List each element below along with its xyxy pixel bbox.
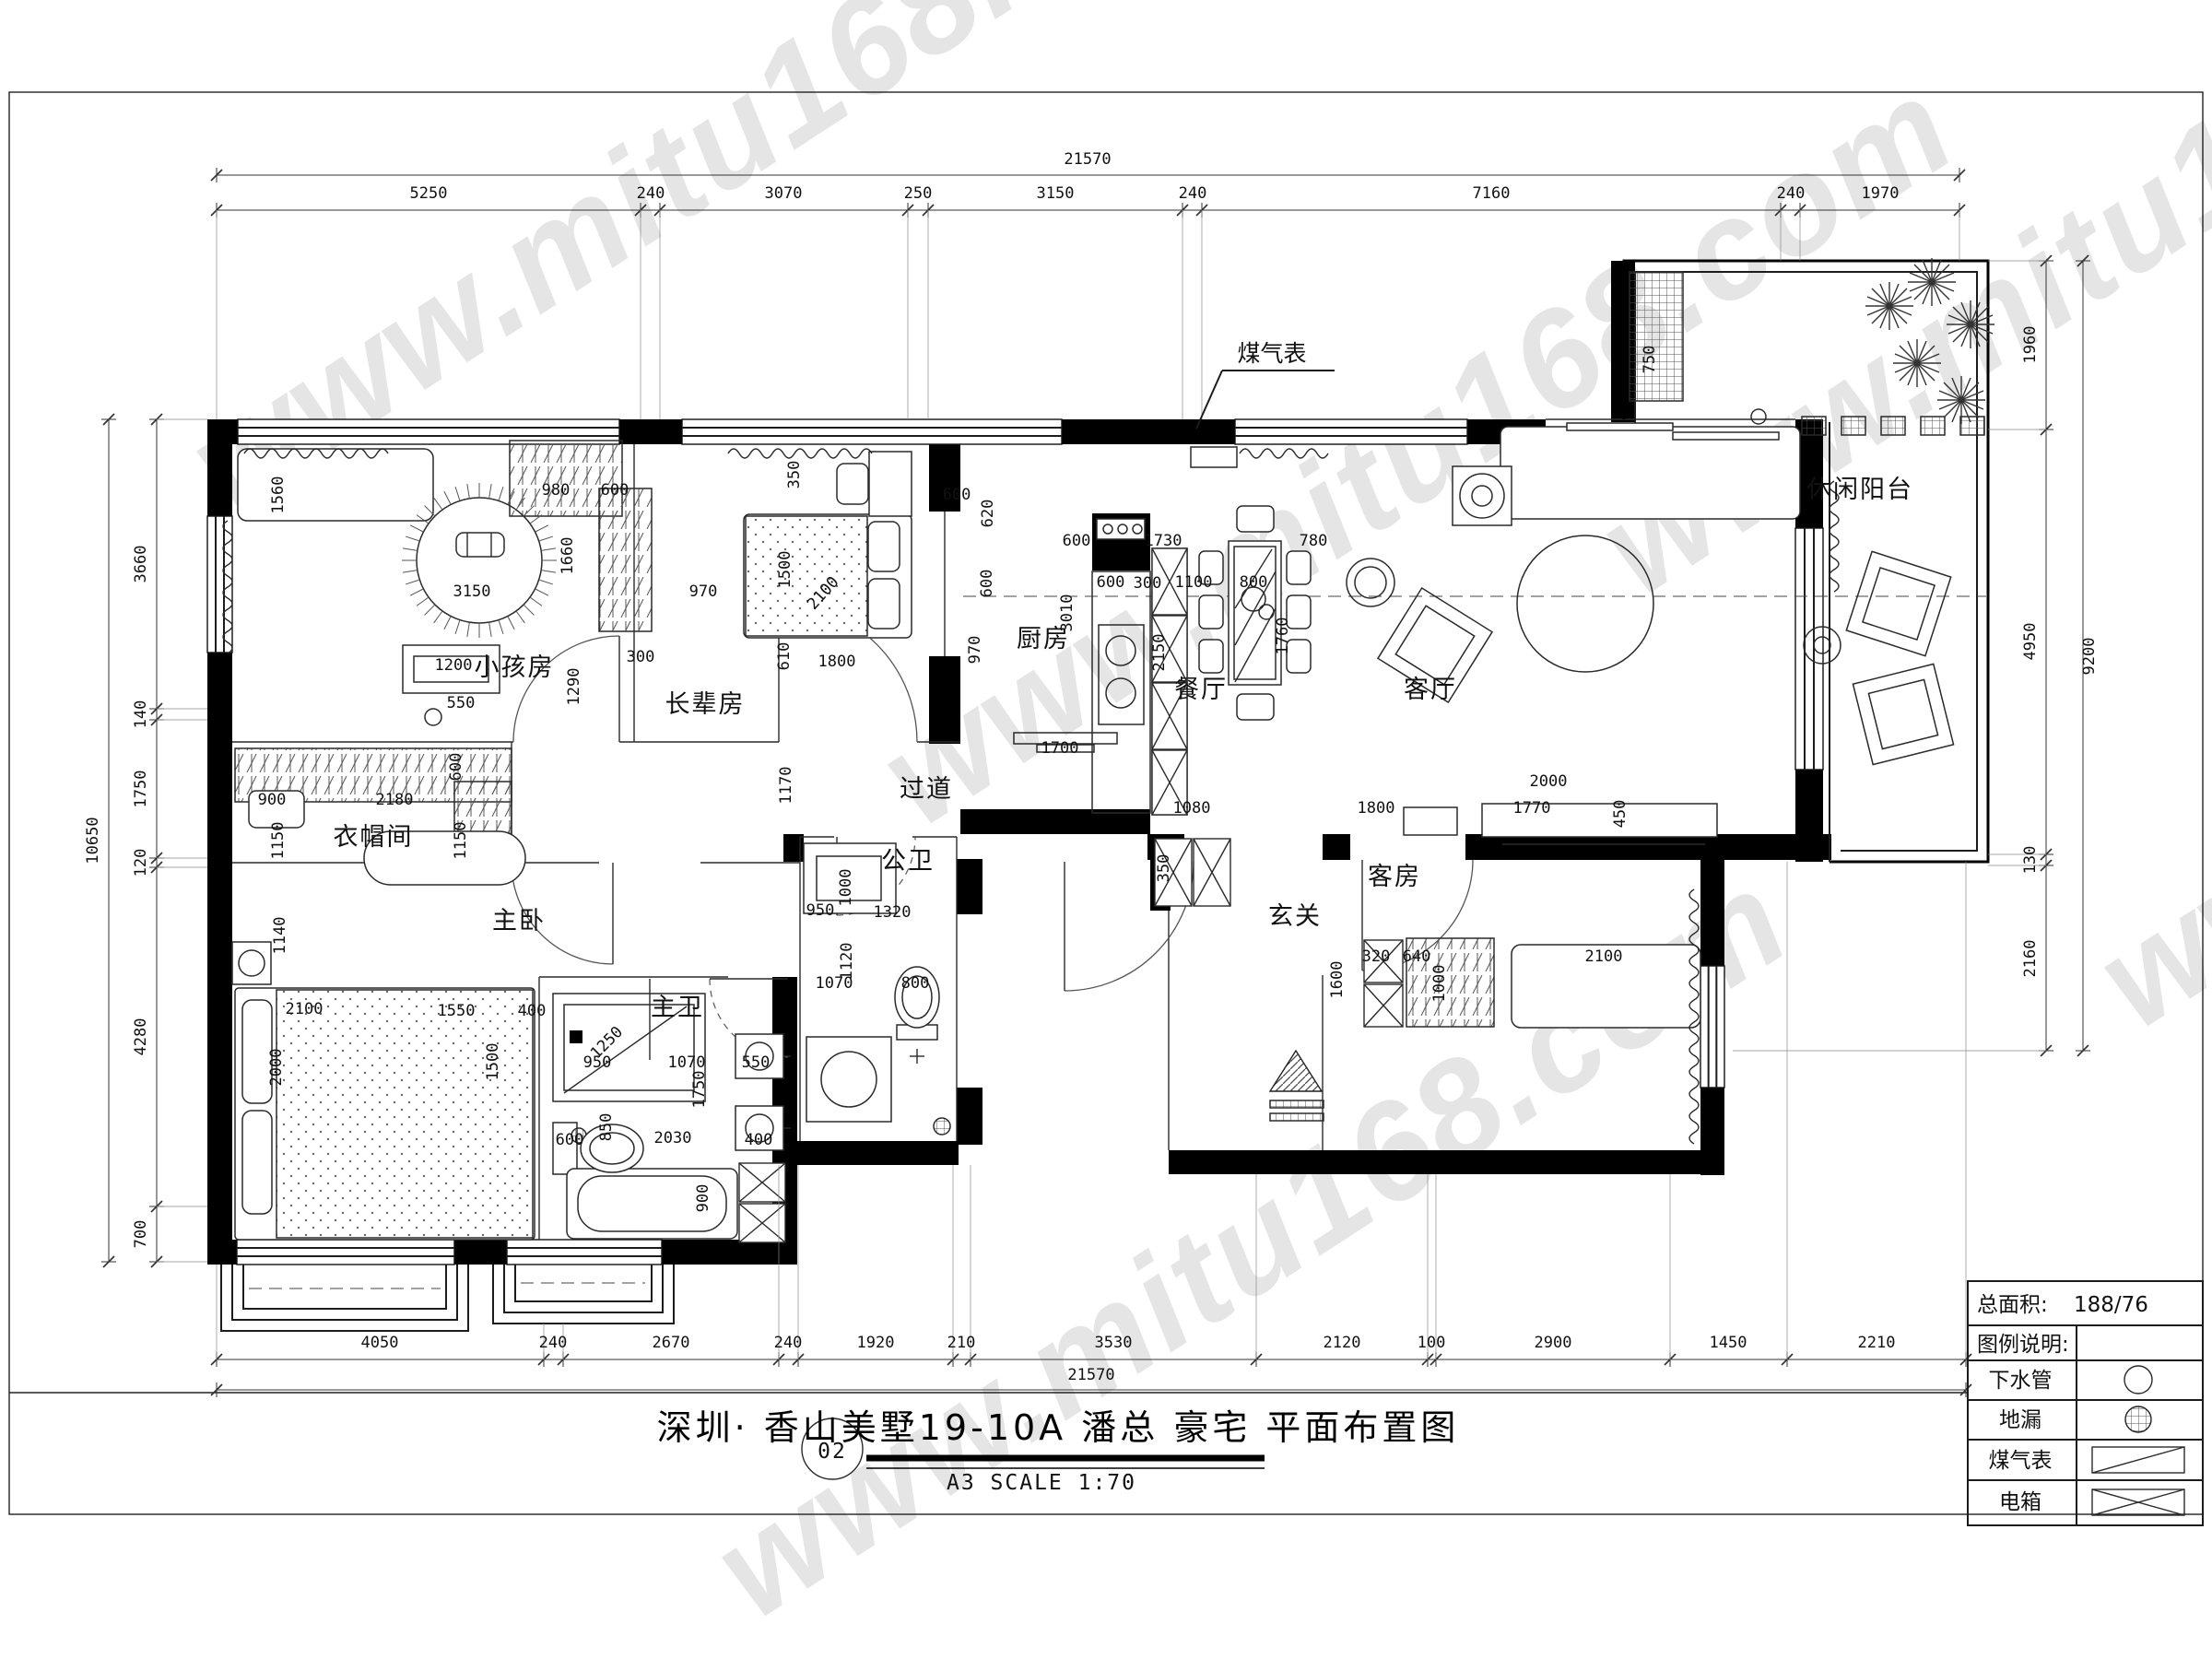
dim-label: 600 bbox=[978, 570, 996, 598]
dim-label: 600 bbox=[1063, 532, 1091, 550]
chair bbox=[1237, 506, 1274, 532]
curtain-line bbox=[728, 449, 872, 458]
window bbox=[1700, 966, 1724, 1088]
north-arrow-icon bbox=[1270, 1051, 1322, 1091]
dim-label: 950 bbox=[806, 901, 835, 920]
dim-label: 3150 bbox=[453, 582, 491, 601]
dim-label: 21570 bbox=[1067, 1366, 1114, 1384]
dim-label: 850 bbox=[597, 1113, 616, 1142]
toy-car bbox=[456, 533, 504, 557]
sink-hole bbox=[1133, 524, 1142, 534]
dim-label: 2100 bbox=[286, 1000, 324, 1018]
dim-label: 10650 bbox=[84, 817, 102, 864]
dim-label: 2210 bbox=[1858, 1334, 1896, 1352]
x-cabinet bbox=[739, 1204, 785, 1242]
legend-item-sewer: 下水管 bbox=[1989, 1369, 2053, 1393]
legend-border bbox=[1968, 1281, 2203, 1525]
dim-label: 5250 bbox=[410, 184, 448, 203]
dim-label: 2160 bbox=[2021, 940, 2040, 978]
sink-hole bbox=[1103, 524, 1112, 534]
dim-label: 970 bbox=[966, 636, 984, 665]
dim-label: 2670 bbox=[653, 1334, 690, 1352]
dim-label: 1550 bbox=[438, 1002, 476, 1020]
legend-item-gas: 煤气表 bbox=[1989, 1449, 2053, 1473]
dim-label: 1770 bbox=[1513, 799, 1551, 818]
sliding-door-leaf bbox=[1673, 432, 1779, 440]
deco-tile bbox=[1960, 417, 1984, 435]
dim-label: 2900 bbox=[1535, 1334, 1572, 1352]
planter bbox=[1630, 272, 1683, 401]
patio-chair bbox=[1853, 664, 1953, 764]
dim-label: 2030 bbox=[654, 1129, 692, 1147]
wall-segment bbox=[207, 1240, 237, 1265]
dim-label: 1750 bbox=[132, 771, 150, 808]
quilt bbox=[276, 990, 533, 1238]
drawing-title: 深圳· 香山美墅19-10A 潘总 豪宅 平面布置图 bbox=[657, 1407, 1460, 1448]
wall-segment bbox=[957, 859, 982, 914]
x-cabinet bbox=[1194, 839, 1230, 906]
dim-label: 21570 bbox=[1064, 150, 1111, 169]
wall-segment bbox=[1700, 860, 1724, 966]
dim-label: 550 bbox=[742, 1053, 771, 1072]
dim-label: 2000 bbox=[1530, 772, 1568, 791]
dim-label: 350 bbox=[785, 461, 804, 489]
wall-segment bbox=[1465, 834, 1831, 860]
desk bbox=[869, 452, 912, 516]
room-label: 玄关 bbox=[1268, 902, 1322, 931]
room-label: 餐厅 bbox=[1174, 676, 1228, 704]
sheet-scale: A3 SCALE 1:70 bbox=[947, 1471, 1136, 1495]
speaker-unit bbox=[1453, 466, 1512, 525]
dim-label: 1070 bbox=[816, 974, 853, 993]
dim-label: 3660 bbox=[132, 546, 150, 583]
dim-label: 4280 bbox=[132, 1018, 150, 1056]
dim-label: 1730 bbox=[1145, 532, 1182, 550]
window bbox=[1795, 528, 1823, 770]
window bbox=[237, 1240, 454, 1265]
floor-plan-canvas: www.mitu168.comwww.mitu168.comwww.mitu16… bbox=[0, 0, 2212, 1659]
dim-label: 1660 bbox=[559, 537, 577, 575]
dim-label: 1320 bbox=[874, 903, 912, 922]
dim-label: 620 bbox=[979, 500, 997, 528]
dim-label: 1960 bbox=[2021, 326, 2040, 364]
legend-total-area-value: 188/76 bbox=[2074, 1293, 2148, 1317]
dim-label: 240 bbox=[1179, 184, 1207, 203]
chair bbox=[1287, 551, 1311, 584]
dim-label: 900 bbox=[258, 791, 287, 809]
wall-segment bbox=[454, 1240, 507, 1265]
dim-label: 300 bbox=[627, 648, 655, 666]
dim-label: 1290 bbox=[565, 668, 583, 706]
dim-label: 320 bbox=[1362, 947, 1391, 966]
sliding-door-leaf bbox=[1567, 423, 1673, 430]
window bbox=[682, 419, 1062, 444]
dim-label: 4950 bbox=[2021, 623, 2040, 661]
room-label: 主卫 bbox=[651, 994, 704, 1022]
chair bbox=[1199, 640, 1223, 673]
dim-label: 1560 bbox=[269, 477, 288, 514]
dim-label: 240 bbox=[774, 1334, 803, 1352]
wall-segment bbox=[1169, 1150, 1724, 1174]
room-label: 客房 bbox=[1368, 863, 1421, 891]
legend-item-electric: 电箱 bbox=[1999, 1490, 2041, 1514]
dim-label: 970 bbox=[689, 582, 718, 601]
dim-label: 3150 bbox=[1037, 184, 1075, 203]
dim-label: 1600 bbox=[1328, 961, 1347, 999]
sewer-pipe-icon bbox=[2124, 1366, 2152, 1394]
dim-label: 1800 bbox=[818, 653, 856, 671]
dim-label: 1700 bbox=[1041, 739, 1079, 758]
dim-label: 140 bbox=[132, 700, 150, 729]
gas-meter-icon bbox=[2092, 1447, 2184, 1473]
pillow bbox=[868, 522, 900, 571]
dim-label: 1080 bbox=[1173, 799, 1211, 818]
wall-outline bbox=[504, 1265, 663, 1312]
wall-segment bbox=[1323, 834, 1350, 860]
dim-label: 2120 bbox=[1324, 1334, 1361, 1352]
deco-tile bbox=[1841, 417, 1865, 435]
window bbox=[207, 516, 232, 653]
round-rug bbox=[417, 498, 542, 623]
round-rug-fringe bbox=[402, 483, 557, 638]
washing-machine bbox=[806, 1037, 891, 1122]
floor-plan-sheet: www.mitu168.comwww.mitu168.comwww.mitu16… bbox=[0, 0, 2212, 1659]
dim-label: 780 bbox=[1300, 532, 1328, 550]
chair bbox=[1237, 694, 1274, 720]
floor-drain-icon bbox=[2125, 1406, 2151, 1432]
floor-drain bbox=[934, 1118, 950, 1135]
dim-label: 1800 bbox=[1358, 799, 1395, 818]
dim-label: 240 bbox=[1777, 184, 1806, 203]
dim-label: 100 bbox=[1418, 1334, 1446, 1352]
pillow bbox=[242, 1111, 272, 1214]
dim-label: 1760 bbox=[1274, 618, 1292, 655]
dim-label: 600 bbox=[556, 1131, 584, 1149]
deco-tile bbox=[1921, 417, 1945, 435]
dim-label: 1200 bbox=[435, 656, 473, 675]
dim-label: 2000 bbox=[267, 1049, 286, 1087]
wall-segment bbox=[788, 1141, 959, 1165]
dim-label: 1000 bbox=[837, 869, 855, 907]
room-label: 过道 bbox=[900, 775, 953, 804]
dim-label: 1970 bbox=[1862, 184, 1900, 203]
dim-label: 640 bbox=[1403, 947, 1431, 966]
deco-tile bbox=[1881, 417, 1905, 435]
pillow bbox=[868, 579, 900, 629]
plant-icon bbox=[1937, 376, 1985, 424]
dim-label: 1500 bbox=[776, 551, 794, 589]
dim-label: 400 bbox=[518, 1002, 547, 1020]
sofa-kids bbox=[238, 449, 433, 521]
dim-label: 800 bbox=[1240, 573, 1268, 592]
sink-hole bbox=[1118, 524, 1127, 534]
dim-label: 600 bbox=[943, 486, 971, 504]
wall-outline bbox=[232, 1265, 457, 1320]
dim-label: 1070 bbox=[668, 1053, 706, 1072]
dim-label: 1450 bbox=[1710, 1334, 1747, 1352]
wall-outline bbox=[493, 1265, 674, 1324]
plant-icon bbox=[1865, 282, 1913, 330]
dim-label: 3070 bbox=[765, 184, 803, 203]
dim-label: 750 bbox=[1641, 346, 1659, 374]
dim-label: 600 bbox=[1097, 573, 1125, 592]
dim-chain: 10650 bbox=[84, 414, 116, 1267]
plant-icon bbox=[1947, 300, 1994, 348]
dim-label: 3530 bbox=[1095, 1334, 1133, 1352]
legend-total-area-label: 总面积: bbox=[1977, 1293, 2048, 1317]
annotation-label: 煤气表 bbox=[1237, 340, 1306, 367]
dim-label: 550 bbox=[447, 694, 476, 712]
wall-segment bbox=[662, 1240, 797, 1265]
room-label: 客厅 bbox=[1404, 676, 1457, 704]
dim-label: 240 bbox=[637, 184, 665, 203]
wall-segment bbox=[570, 1030, 582, 1043]
room-label: 公卫 bbox=[881, 847, 935, 876]
quilt bbox=[746, 516, 867, 636]
chair bbox=[1199, 595, 1223, 629]
dim-label: 1100 bbox=[1175, 573, 1213, 592]
stool bbox=[425, 709, 441, 725]
dim-chain: 366014017501204280700 bbox=[132, 414, 207, 1267]
wall-segment bbox=[1062, 419, 1235, 444]
room-label: 主卧 bbox=[492, 907, 546, 935]
dim-label: 300 bbox=[1134, 574, 1162, 593]
dim-label: 1500 bbox=[484, 1043, 502, 1081]
x-cabinet bbox=[739, 1163, 785, 1202]
dim-label: 120 bbox=[132, 849, 150, 877]
dim-label: 2180 bbox=[376, 791, 414, 809]
dim-label: 250 bbox=[904, 184, 933, 203]
wall-outline bbox=[221, 1265, 468, 1331]
dim-label: 7160 bbox=[1473, 184, 1511, 203]
wall-segment bbox=[929, 656, 960, 744]
room-label: 厨房 bbox=[1017, 625, 1070, 653]
plant-icon bbox=[1893, 339, 1941, 387]
plant-icon bbox=[1908, 258, 1956, 306]
dim-label: 4050 bbox=[361, 1334, 399, 1352]
dim-label: 240 bbox=[539, 1334, 568, 1352]
room-label: 衣帽间 bbox=[334, 823, 414, 852]
dim-label: 800 bbox=[901, 974, 930, 993]
dim-label: 1140 bbox=[271, 917, 289, 955]
dim-label: 450 bbox=[1611, 800, 1630, 829]
dim-label: 2150 bbox=[1150, 634, 1169, 672]
sofa-living bbox=[1500, 427, 1800, 519]
dim-label: 600 bbox=[601, 481, 629, 500]
dim-label: 610 bbox=[775, 642, 794, 671]
wall-segment bbox=[957, 1088, 982, 1145]
dim-label: 600 bbox=[447, 753, 465, 782]
dim-label: 1150 bbox=[452, 822, 470, 860]
window bbox=[1235, 419, 1467, 444]
dim-label: 1000 bbox=[1430, 965, 1449, 1003]
north-bar bbox=[1270, 1113, 1324, 1121]
wall-segment bbox=[619, 419, 682, 444]
round-rug bbox=[1517, 535, 1653, 672]
legend-note-label: 图例说明: bbox=[1977, 1333, 2069, 1357]
gas-meter-symbol bbox=[1191, 447, 1237, 467]
dim-label: 2100 bbox=[1585, 947, 1623, 966]
legend-table: 总面积: 188/76 图例说明: 下水管 地漏 煤气表 电箱 bbox=[1968, 1281, 2203, 1525]
cabinet bbox=[1404, 807, 1457, 835]
dim-label: 700 bbox=[132, 1220, 150, 1249]
room-label: 休闲阳台 bbox=[1806, 476, 1913, 504]
chair bbox=[837, 464, 868, 504]
dim-label: 900 bbox=[694, 1184, 712, 1213]
dim-label: 350 bbox=[1155, 854, 1173, 883]
electric-box-icon bbox=[2092, 1489, 2184, 1515]
dim-label: 210 bbox=[947, 1334, 976, 1352]
north-bar bbox=[1270, 1100, 1324, 1108]
deco-tile bbox=[1802, 417, 1826, 435]
dim-label: 1170 bbox=[777, 767, 795, 805]
dim-label: 130 bbox=[2021, 846, 2040, 875]
dim-label: 9200 bbox=[2080, 638, 2099, 676]
room-label: 长辈房 bbox=[665, 690, 746, 719]
dim-label: 1150 bbox=[269, 822, 288, 860]
patio-chair bbox=[1846, 551, 1950, 655]
wall-outline bbox=[243, 1265, 446, 1309]
dim-label: 400 bbox=[745, 1131, 773, 1149]
wardrobe bbox=[599, 488, 652, 631]
dim-label: 1750 bbox=[690, 1071, 709, 1109]
dim-label: 1920 bbox=[857, 1334, 895, 1352]
room-label: 小孩房 bbox=[475, 653, 555, 682]
x-cabinet bbox=[1364, 984, 1403, 1027]
dim-label: 980 bbox=[542, 481, 571, 500]
window bbox=[507, 1240, 662, 1265]
legend-item-drain: 地漏 bbox=[1999, 1408, 2041, 1432]
